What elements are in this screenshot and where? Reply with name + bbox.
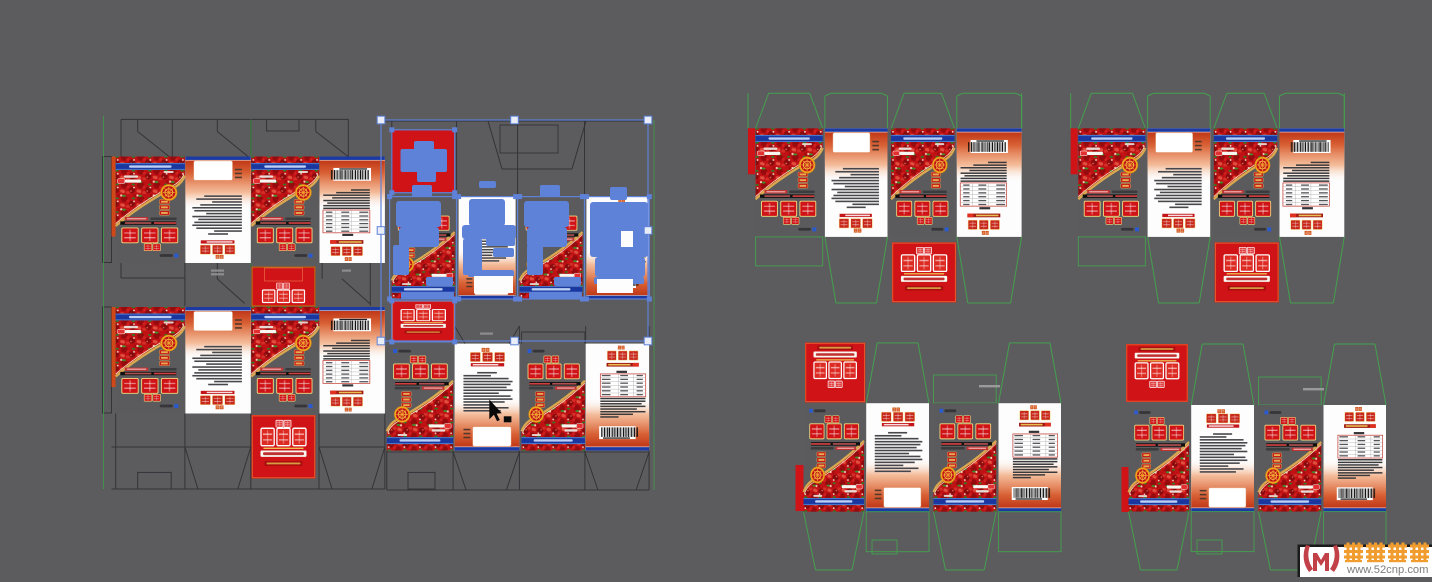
svg-text:www.52cnp.com: www.52cnp.com [1346,564,1428,576]
